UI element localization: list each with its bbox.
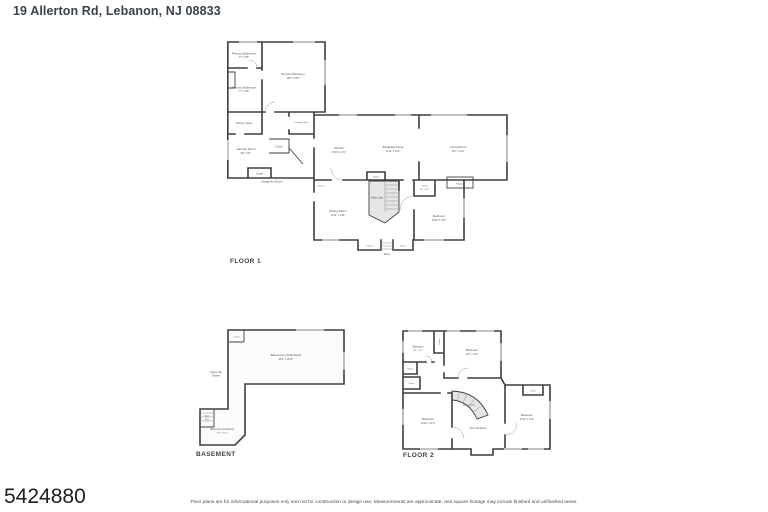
room-dims-laundry: 8'6" x 9'4" xyxy=(241,152,252,155)
room-label-pantry: Pantry xyxy=(317,185,324,188)
room-label-primary-bathroom-b: Primary Bathroom xyxy=(232,86,257,90)
room-label-closet-entry-b: Closet xyxy=(400,245,406,248)
room-label-basement-stairs-line1: Stairs xyxy=(204,415,209,418)
room-label-closet-right: Closet xyxy=(530,389,536,392)
room-label-dining-room: Dining Room xyxy=(329,209,347,213)
room-label-entry: Entry xyxy=(384,253,391,256)
room-dims-primary-bathroom-a: 7'7" x 5'6" xyxy=(239,56,250,59)
room-label-primary-bathroom-a: Primary Bathroom xyxy=(232,52,257,56)
room-dims-bedroom: 10'10" x 13'0" xyxy=(432,219,447,222)
room-label-primary-bedroom: Primary Bedroom xyxy=(281,72,305,76)
disclaimer-text: Floor plans are for informational purpos… xyxy=(0,500,768,505)
room-label-closet-stairs: Closet xyxy=(373,176,379,179)
room-dims-bedroom-left: 12'10" x 11'6" xyxy=(421,422,435,425)
room-label-closet-entry-a: Closet xyxy=(367,245,373,248)
room-label-bedroom-top: Bedroom xyxy=(466,348,479,352)
room-dims-primary-bathroom-b: 7'7" x 9'6" xyxy=(239,90,250,93)
space-not-shown-line2: Shown xyxy=(212,375,220,378)
room-label-closet-left-a: Closet xyxy=(407,367,413,370)
room-dims-bedroom-right: 11'10" x 13'2" xyxy=(520,418,534,421)
room-label-stairs-up: Stairs (Up) xyxy=(371,197,383,200)
room-dims-bedroom-top: 11'6" x 10'4" xyxy=(466,353,479,356)
room-label-kitchen: Kitchen xyxy=(334,146,344,150)
room-dims-breakfast-nook: 11'11" x 14'1" xyxy=(386,150,400,153)
room-label-basement-unfinished: Basement (Unfinished) xyxy=(271,353,302,357)
room-dims-dining-room: 11'11" x 13'0" xyxy=(331,214,345,217)
room-dims-primary-bedroom: 13'8" x 15'2" xyxy=(286,77,299,80)
space-not-shown-line1: Space Not xyxy=(210,371,222,374)
basement-plan: Closet Basement (Unfinished) 36'1" x 16'… xyxy=(196,327,348,451)
fireplace-label: Fireplace xyxy=(456,182,465,185)
room-dims-basement-unfinished: 36'1" x 16'10" xyxy=(279,358,294,361)
basement-label: BASEMENT xyxy=(196,451,236,458)
floor1-label: FLOOR 1 xyxy=(230,258,261,265)
room-label-bathroom: Bathroom xyxy=(413,346,424,349)
floor1-plan: Primary Bathroom 7'7" x 5'6" Primary Bat… xyxy=(227,40,511,260)
room-label-primary-closet-a: Primary Closet xyxy=(236,122,253,125)
floorplan-sheet: 19 Allerton Rd, Lebanon, NJ 08833 Primar… xyxy=(0,0,768,512)
room-label-bedroom-right: Bedroom xyxy=(521,413,534,417)
floor2-label: FLOOR 2 xyxy=(403,452,434,459)
room-label-bedroom-left: Bedroom xyxy=(422,417,435,421)
room-label-breakfast-nook: Breakfast Nook xyxy=(383,145,404,149)
room-label-closet-laundry: Closet xyxy=(275,146,282,149)
room-label-closet-bedroom: Closet xyxy=(422,185,428,188)
room-label-open-to-below: Open To Below xyxy=(470,427,487,430)
room-dims-kitchen: 10'10" x 14'1" xyxy=(332,151,347,154)
page-title: 19 Allerton Rd, Lebanon, NJ 08833 xyxy=(13,4,221,18)
room-label-closet-garage: Closet xyxy=(256,173,263,176)
floor1-stairs-area xyxy=(369,181,399,223)
listing-number: 5424880 xyxy=(4,485,86,509)
room-label-living-room: Living Room xyxy=(450,145,467,149)
room-label-basement-closet: Closet xyxy=(234,336,240,339)
room-label-laundry: Laundry Room xyxy=(236,147,256,151)
room-label-basement-stairs-line2: (Up) xyxy=(205,419,209,421)
floor2-plan: Bathroom 8'2" x 5'4" Closet Bedroom 11'6… xyxy=(400,327,560,459)
room-label-closet-left-b: Closet xyxy=(409,382,415,385)
room-dims-basement-finished: 17'4" x 11'2" xyxy=(216,433,228,435)
room-dims-living-room: 19'1" x 14'1" xyxy=(451,150,464,153)
room-label-stairs-down: Stairs (Down) xyxy=(463,404,476,407)
room-label-basement-finished: Basement (Finished) xyxy=(210,428,233,431)
room-dims-bathroom: 8'2" x 5'4" xyxy=(413,350,422,352)
garage-note: Garage Not Shown xyxy=(261,181,283,184)
room-label-closet-top: Closet xyxy=(438,339,441,345)
room-label-bedroom: Bedroom xyxy=(433,214,446,218)
floor1-room-labels: Primary Bathroom 7'7" x 5'6" Primary Bat… xyxy=(232,52,467,257)
room-dims-closet-bedroom: 4'6" x 3'3" xyxy=(420,189,429,191)
room-label-primary-closet-b: Primary Closet xyxy=(295,121,309,124)
